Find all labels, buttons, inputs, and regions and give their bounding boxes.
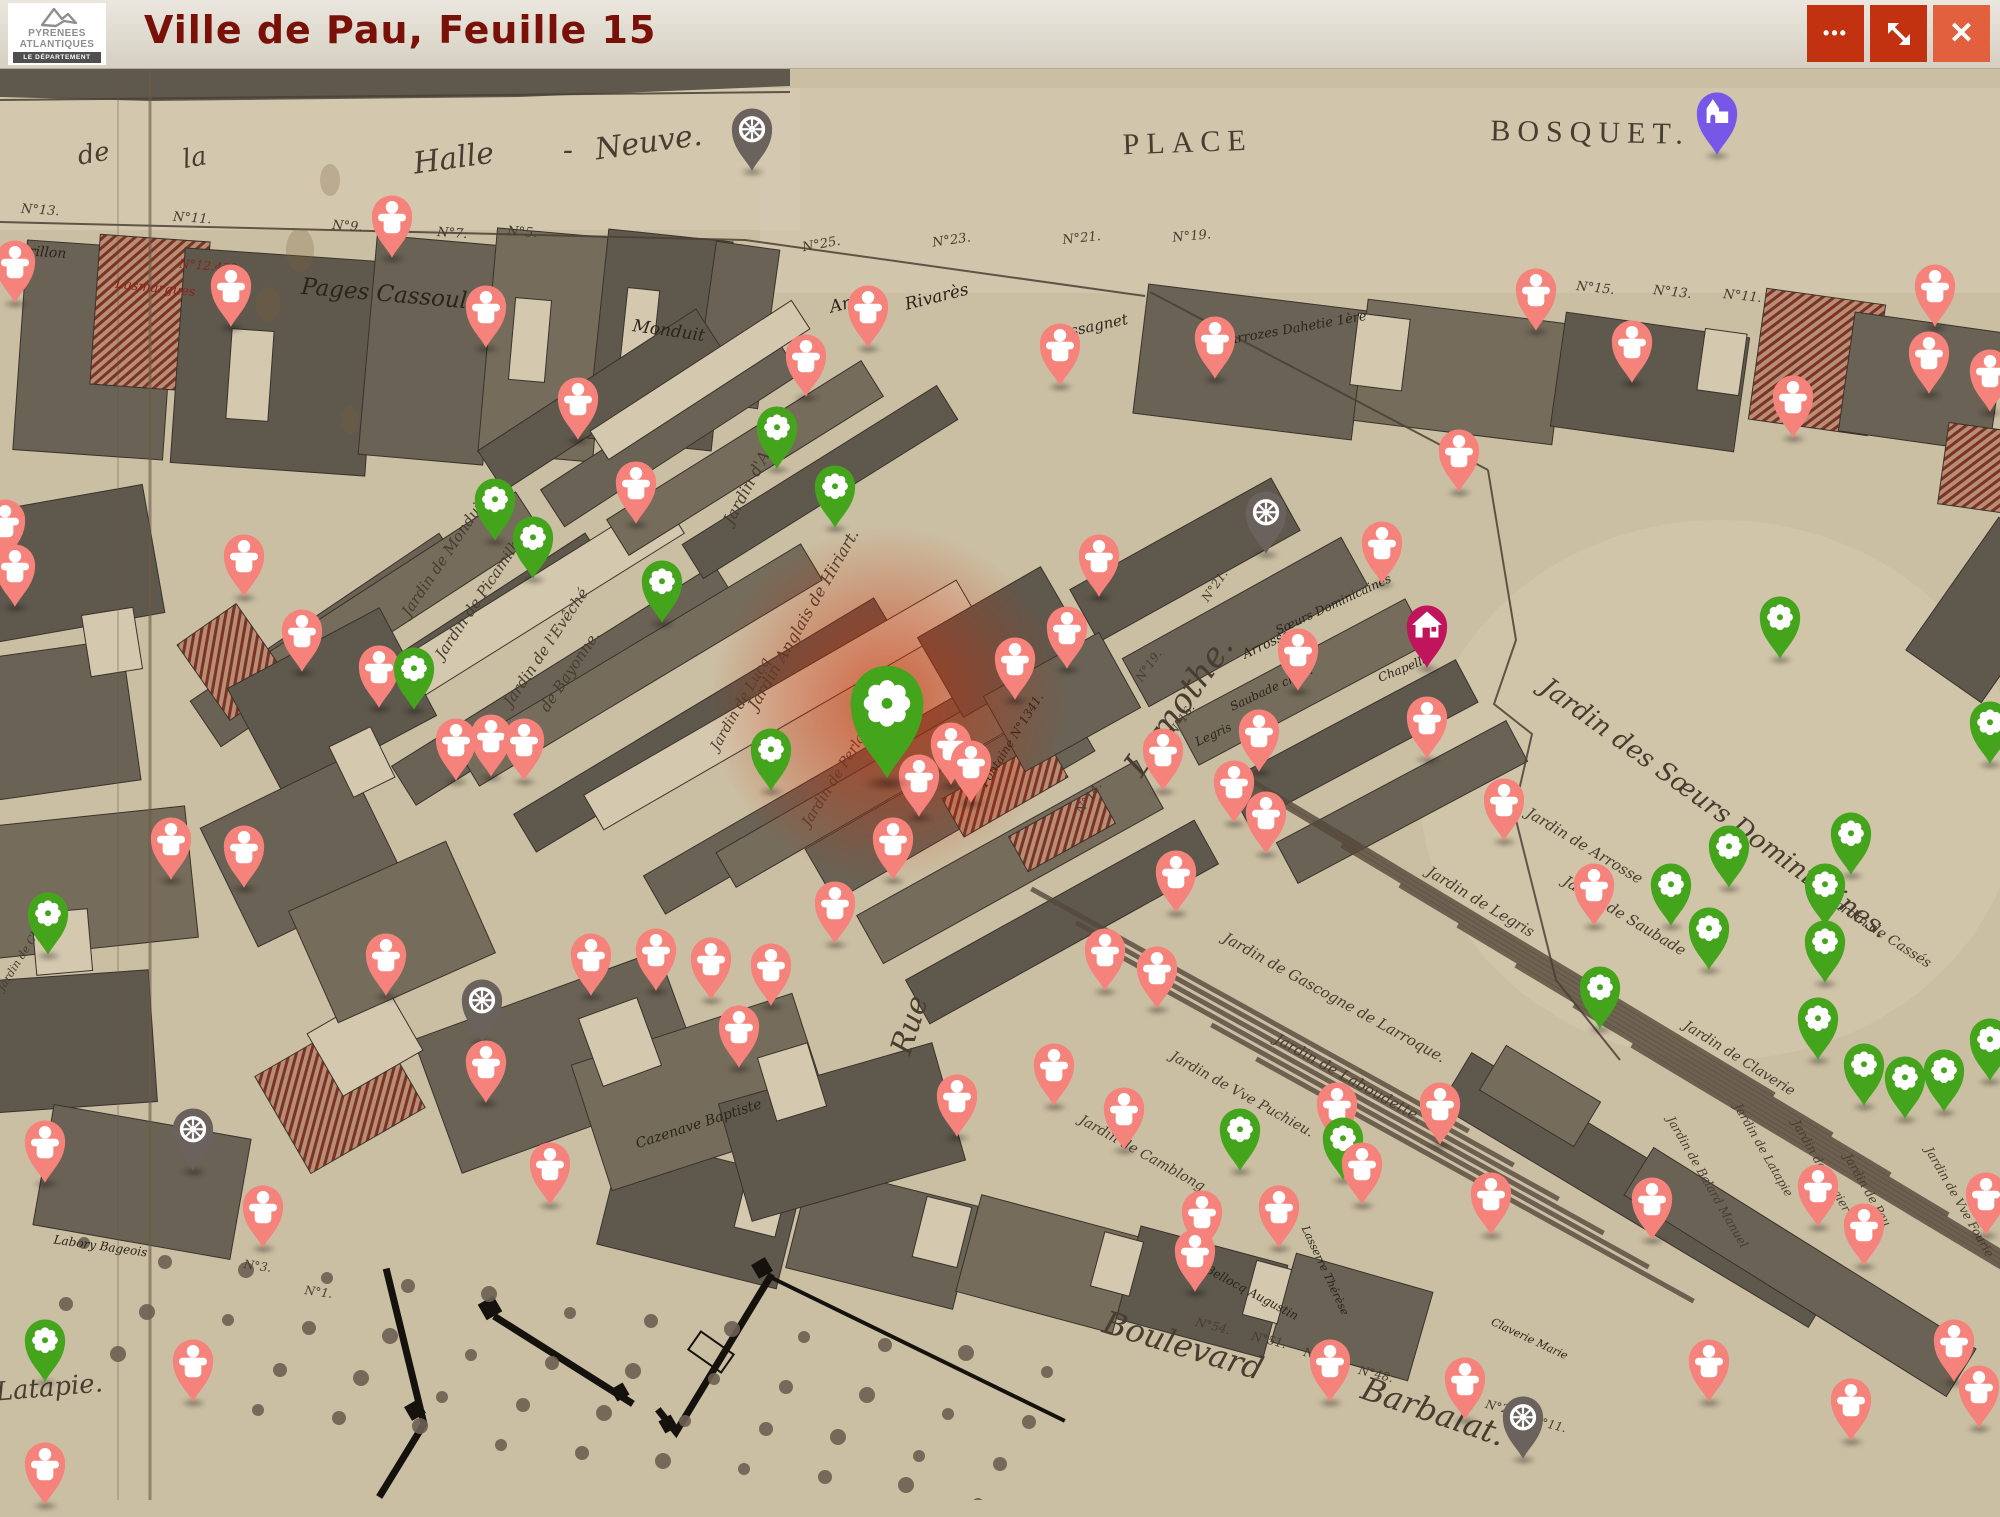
person-icon <box>1304 1336 1356 1404</box>
map-pin-person[interactable] <box>218 531 270 609</box>
map-pin-person[interactable] <box>0 237 41 315</box>
person-icon <box>1606 317 1658 385</box>
map-pin-garden-works[interactable] <box>1754 593 1806 671</box>
person-icon <box>366 192 418 260</box>
map-pin-garden-works[interactable] <box>1879 1053 1931 1131</box>
map-pin-person[interactable] <box>1150 847 1202 925</box>
person-icon <box>945 737 997 805</box>
person-icon <box>205 261 257 329</box>
flower-icon <box>745 725 797 793</box>
person-icon <box>630 925 682 993</box>
map-pin-person[interactable] <box>1356 518 1408 596</box>
wheel-icon <box>167 1105 219 1173</box>
person-icon <box>218 822 270 890</box>
map-pin-person[interactable] <box>1079 925 1131 1003</box>
person-icon <box>1825 1375 1877 1443</box>
map-pin-person[interactable] <box>1272 625 1324 703</box>
map-pin-person[interactable] <box>1169 1226 1221 1304</box>
person-icon <box>218 531 270 599</box>
flower-icon <box>1964 698 2000 766</box>
person-icon <box>1439 1354 1491 1422</box>
person-icon <box>1131 943 1183 1011</box>
person-icon <box>809 878 861 946</box>
flower-icon <box>809 462 861 530</box>
window-controls: ••• ✕ <box>1807 5 1990 62</box>
map-pin-garden-works[interactable] <box>1792 994 1844 1072</box>
map-pin-person[interactable] <box>809 878 861 956</box>
map-pin-person[interactable] <box>945 737 997 815</box>
map-pin-person[interactable] <box>1073 531 1125 609</box>
flower-icon <box>19 1316 71 1384</box>
map-pin-garden-works[interactable] <box>809 462 861 540</box>
map-pin-person[interactable] <box>237 1182 289 1260</box>
map-pin-person[interactable] <box>931 1071 983 1149</box>
map-pin-garden-works[interactable] <box>1214 1105 1266 1183</box>
person-icon <box>1028 1040 1080 1108</box>
map-pin-person[interactable] <box>1838 1200 1890 1278</box>
map-pin-garden-works[interactable] <box>1683 904 1735 982</box>
map-pin-person[interactable] <box>1304 1336 1356 1414</box>
wheel-icon <box>1497 1393 1549 1461</box>
pins-layer <box>0 0 2000 1500</box>
map-pin-person[interactable] <box>1336 1139 1388 1217</box>
person-icon <box>1098 1084 1150 1152</box>
person-icon <box>276 606 328 674</box>
person-icon <box>713 1002 765 1070</box>
map-pin-garden-works[interactable] <box>1574 963 1626 1041</box>
wheel-icon <box>726 105 778 173</box>
person-icon <box>0 237 41 305</box>
logo-line3: LE DÉPARTEMENT <box>13 52 101 63</box>
map-pin-person[interactable] <box>430 715 482 793</box>
flower-icon <box>1754 593 1806 661</box>
map-canvas[interactable]: delaHalle-Neuve.PLACEBOSQUET.Pages Casso… <box>0 0 2000 1500</box>
person-icon <box>1336 1139 1388 1207</box>
map-pin-person[interactable] <box>19 1117 71 1195</box>
map-pin-person[interactable] <box>524 1139 576 1217</box>
map-pin-person[interactable] <box>1510 265 1562 343</box>
map-pin-person[interactable] <box>565 930 617 1008</box>
map-pin-person[interactable] <box>1792 1161 1844 1239</box>
church-icon <box>1691 89 1743 157</box>
person-icon <box>0 541 41 609</box>
flower-icon <box>751 403 803 471</box>
map-pin-person[interactable] <box>0 541 41 619</box>
map-pin-person[interactable] <box>1414 1079 1466 1157</box>
map-pin-person[interactable] <box>1626 1174 1678 1252</box>
person-icon <box>931 1071 983 1139</box>
map-pin-garden-works[interactable] <box>22 889 74 967</box>
map-pin-garden-works[interactable] <box>388 644 440 722</box>
person-icon <box>1034 320 1086 388</box>
department-logo: PYRENEES ATLANTIQUES LE DÉPARTEMENT <box>8 3 106 65</box>
person-icon <box>19 1439 71 1507</box>
map-pin-person[interactable] <box>1439 1354 1491 1432</box>
map-pin-person[interactable] <box>1478 775 1530 853</box>
map-pin-person[interactable] <box>167 1336 219 1414</box>
person-icon <box>1073 531 1125 599</box>
person-icon <box>1478 775 1530 843</box>
person-icon <box>1838 1200 1890 1268</box>
person-icon <box>552 374 604 442</box>
map-pin-person[interactable] <box>1253 1182 1305 1260</box>
flower-icon <box>1703 822 1755 890</box>
person-icon <box>1079 925 1131 993</box>
map-pin-person[interactable] <box>1137 725 1189 803</box>
map-pin-person[interactable] <box>1189 313 1241 391</box>
map-pin-garden-works[interactable] <box>1703 822 1755 900</box>
person-icon <box>989 634 1041 702</box>
map-pin-person[interactable] <box>360 930 412 1008</box>
map-pin-person[interactable] <box>1606 317 1658 395</box>
logo-line2: ATLANTIQUES <box>20 40 95 51</box>
map-pin-person[interactable] <box>218 822 270 900</box>
more-options-button[interactable]: ••• <box>1807 5 1864 62</box>
person-icon <box>498 715 550 783</box>
person-icon <box>1401 693 1453 761</box>
flower-icon <box>22 889 74 957</box>
fullscreen-button[interactable] <box>1870 5 1927 62</box>
map-pin-transport[interactable] <box>1240 488 1292 566</box>
map-pin-person[interactable] <box>1903 328 1955 406</box>
map-pin-person[interactable] <box>1433 426 1485 504</box>
map-pin-person[interactable] <box>842 282 894 360</box>
close-button[interactable]: ✕ <box>1933 5 1990 62</box>
person-icon <box>460 1037 512 1105</box>
flower-icon <box>507 513 559 581</box>
flower-icon <box>1792 994 1844 1062</box>
map-pin-transport[interactable] <box>1497 1393 1549 1471</box>
person-icon <box>565 930 617 998</box>
page-title: Ville de Pau, Feuille 15 <box>144 8 656 52</box>
person-icon <box>1568 860 1620 928</box>
map-pin-person[interactable] <box>1098 1084 1150 1162</box>
map-pin-person[interactable] <box>630 925 682 1003</box>
flower-icon <box>1879 1053 1931 1121</box>
person-icon <box>1137 725 1189 793</box>
map-pin-person[interactable] <box>610 458 662 536</box>
person-icon <box>430 715 482 783</box>
person-icon <box>1240 788 1292 856</box>
flower-icon <box>1214 1105 1266 1173</box>
person-icon <box>1189 313 1241 381</box>
wheel-icon <box>1240 488 1292 556</box>
close-icon: ✕ <box>1949 16 1974 51</box>
flower-icon <box>840 660 934 782</box>
person-icon <box>460 282 512 350</box>
map-pin-church[interactable] <box>1691 89 1743 167</box>
person-icon <box>167 1336 219 1404</box>
person-icon <box>780 331 832 399</box>
map-pin-person[interactable] <box>989 634 1041 712</box>
map-pin-garden-works-highlighted[interactable] <box>840 660 934 792</box>
map-pin-person[interactable] <box>1953 1362 2000 1440</box>
map-pin-garden-works[interactable] <box>19 1316 71 1394</box>
person-icon <box>1356 518 1408 586</box>
person-icon <box>1683 1336 1735 1404</box>
person-icon <box>145 814 197 882</box>
person-icon <box>1169 1226 1221 1294</box>
map-pin-person[interactable] <box>1034 320 1086 398</box>
person-icon <box>1272 625 1324 693</box>
person-icon <box>745 940 797 1008</box>
flower-icon <box>636 557 688 625</box>
map-pin-person[interactable] <box>276 606 328 684</box>
map-pin-person[interactable] <box>460 282 512 360</box>
map-pin-transport[interactable] <box>726 105 778 183</box>
map-pin-garden-works[interactable] <box>507 513 559 591</box>
map-pin-person[interactable] <box>552 374 604 452</box>
person-icon <box>1626 1174 1678 1242</box>
person-icon <box>867 814 919 882</box>
person-icon <box>1903 328 1955 396</box>
person-icon <box>685 934 737 1002</box>
header: PYRENEES ATLANTIQUES LE DÉPARTEMENT Vill… <box>0 0 2000 69</box>
map-pin-person[interactable] <box>1131 943 1183 1021</box>
person-icon <box>610 458 662 526</box>
person-icon <box>1253 1182 1305 1250</box>
map-pin-person[interactable] <box>1825 1375 1877 1453</box>
map-pin-person[interactable] <box>19 1439 71 1517</box>
person-icon <box>1792 1161 1844 1229</box>
map-pin-person[interactable] <box>1401 693 1453 771</box>
person-icon <box>1150 847 1202 915</box>
person-icon <box>1510 265 1562 333</box>
map-pin-person[interactable] <box>685 934 737 1012</box>
fullscreen-arrows-icon <box>1882 17 1916 51</box>
person-icon <box>524 1139 576 1207</box>
map-pin-person[interactable] <box>366 192 418 270</box>
map-pin-person[interactable] <box>713 1002 765 1080</box>
map-pin-garden-works[interactable] <box>745 725 797 803</box>
flower-icon <box>1574 963 1626 1031</box>
more-options-icon: ••• <box>1823 23 1848 44</box>
house-icon <box>1401 602 1453 670</box>
map-pin-person[interactable] <box>1465 1169 1517 1247</box>
person-icon <box>1041 603 1093 671</box>
map-pin-person[interactable] <box>1240 788 1292 866</box>
map-pin-person[interactable] <box>460 1037 512 1115</box>
person-icon <box>1909 261 1961 329</box>
person-icon <box>1767 372 1819 440</box>
map-pin-garden-works[interactable] <box>1799 917 1851 995</box>
person-icon <box>237 1182 289 1250</box>
flower-icon <box>1799 917 1851 985</box>
map-pin-person[interactable] <box>867 814 919 892</box>
map-pin-person[interactable] <box>145 814 197 892</box>
person-icon <box>360 930 412 998</box>
map-pin-person[interactable] <box>498 715 550 793</box>
person-icon <box>1953 1362 2000 1430</box>
map-pin-person[interactable] <box>1041 603 1093 681</box>
map-pin-garden-works[interactable] <box>1964 698 2000 776</box>
person-icon <box>842 282 894 350</box>
person-icon <box>1414 1079 1466 1147</box>
person-icon <box>1964 346 2000 414</box>
map-pin-person[interactable] <box>1960 1169 2000 1247</box>
person-icon <box>19 1117 71 1185</box>
flower-icon <box>388 644 440 712</box>
mountain-logo-icon <box>34 5 80 29</box>
map-pin-person[interactable] <box>780 331 832 409</box>
map-pin-person[interactable] <box>1683 1336 1735 1414</box>
map-pin-house[interactable] <box>1401 602 1453 680</box>
wheel-icon <box>456 976 508 1044</box>
person-icon <box>1960 1169 2000 1237</box>
map-pin-person[interactable] <box>1964 346 2000 424</box>
flower-icon <box>1683 904 1735 972</box>
map-pin-garden-works[interactable] <box>636 557 688 635</box>
person-icon <box>1433 426 1485 494</box>
map-pin-garden-works[interactable] <box>751 403 803 481</box>
map-pin-person[interactable] <box>1568 860 1620 938</box>
map-pin-person[interactable] <box>1028 1040 1080 1118</box>
person-icon <box>1465 1169 1517 1237</box>
map-pin-person[interactable] <box>1767 372 1819 450</box>
map-pin-person[interactable] <box>205 261 257 339</box>
map-pin-transport[interactable] <box>167 1105 219 1183</box>
